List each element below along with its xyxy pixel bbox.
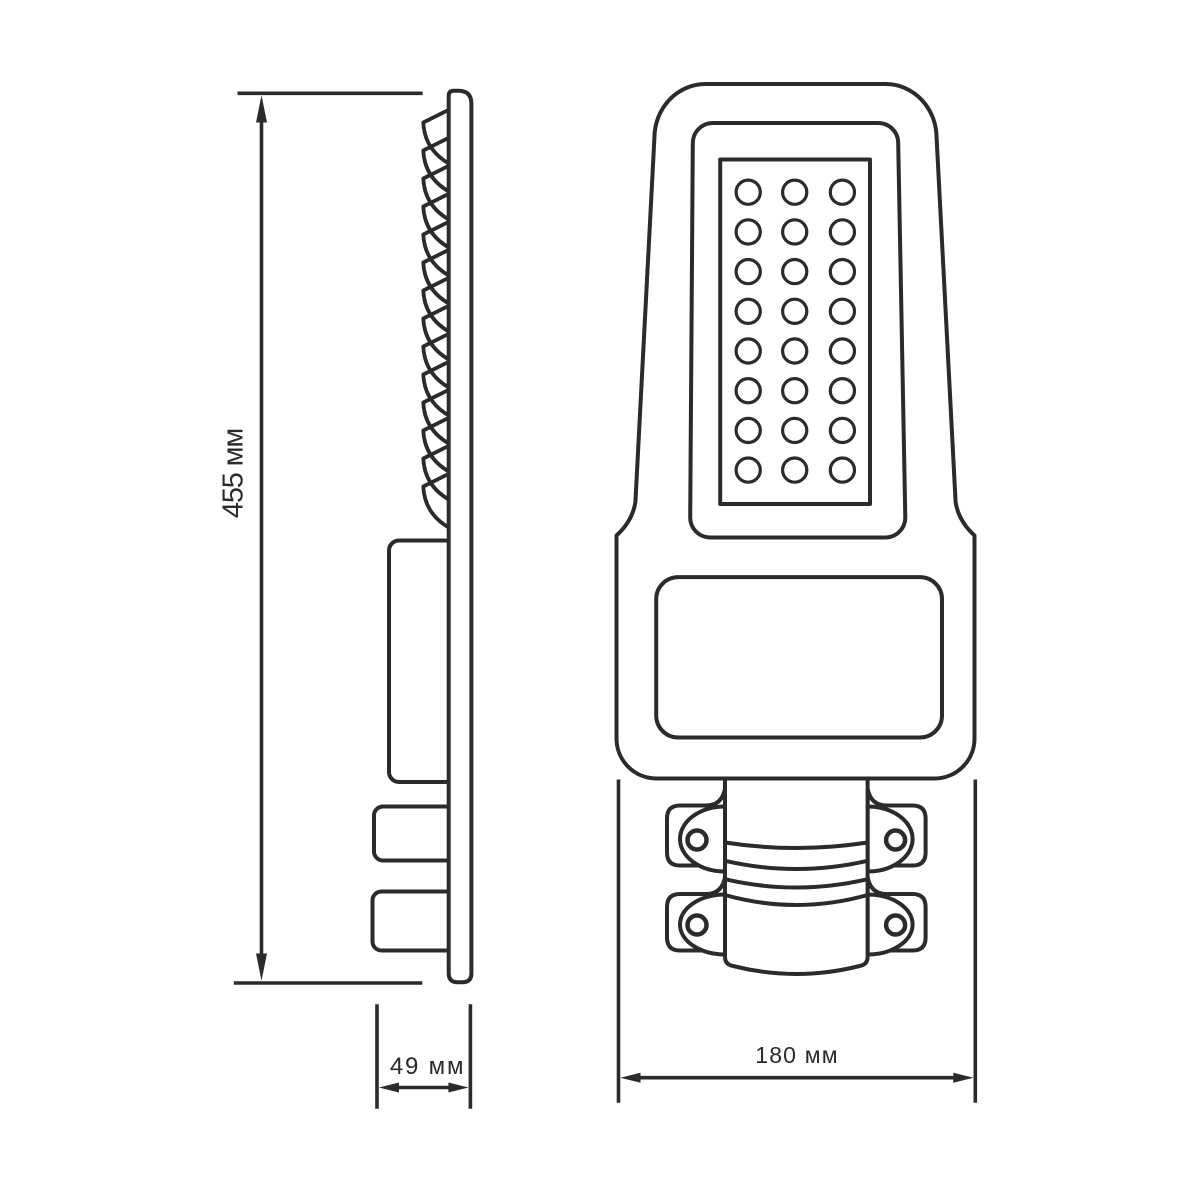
svg-text:180 мм: 180 мм — [755, 1042, 839, 1068]
svg-text:455 мм: 455 мм — [218, 429, 250, 518]
svg-text:49 мм: 49 мм — [390, 1053, 465, 1080]
